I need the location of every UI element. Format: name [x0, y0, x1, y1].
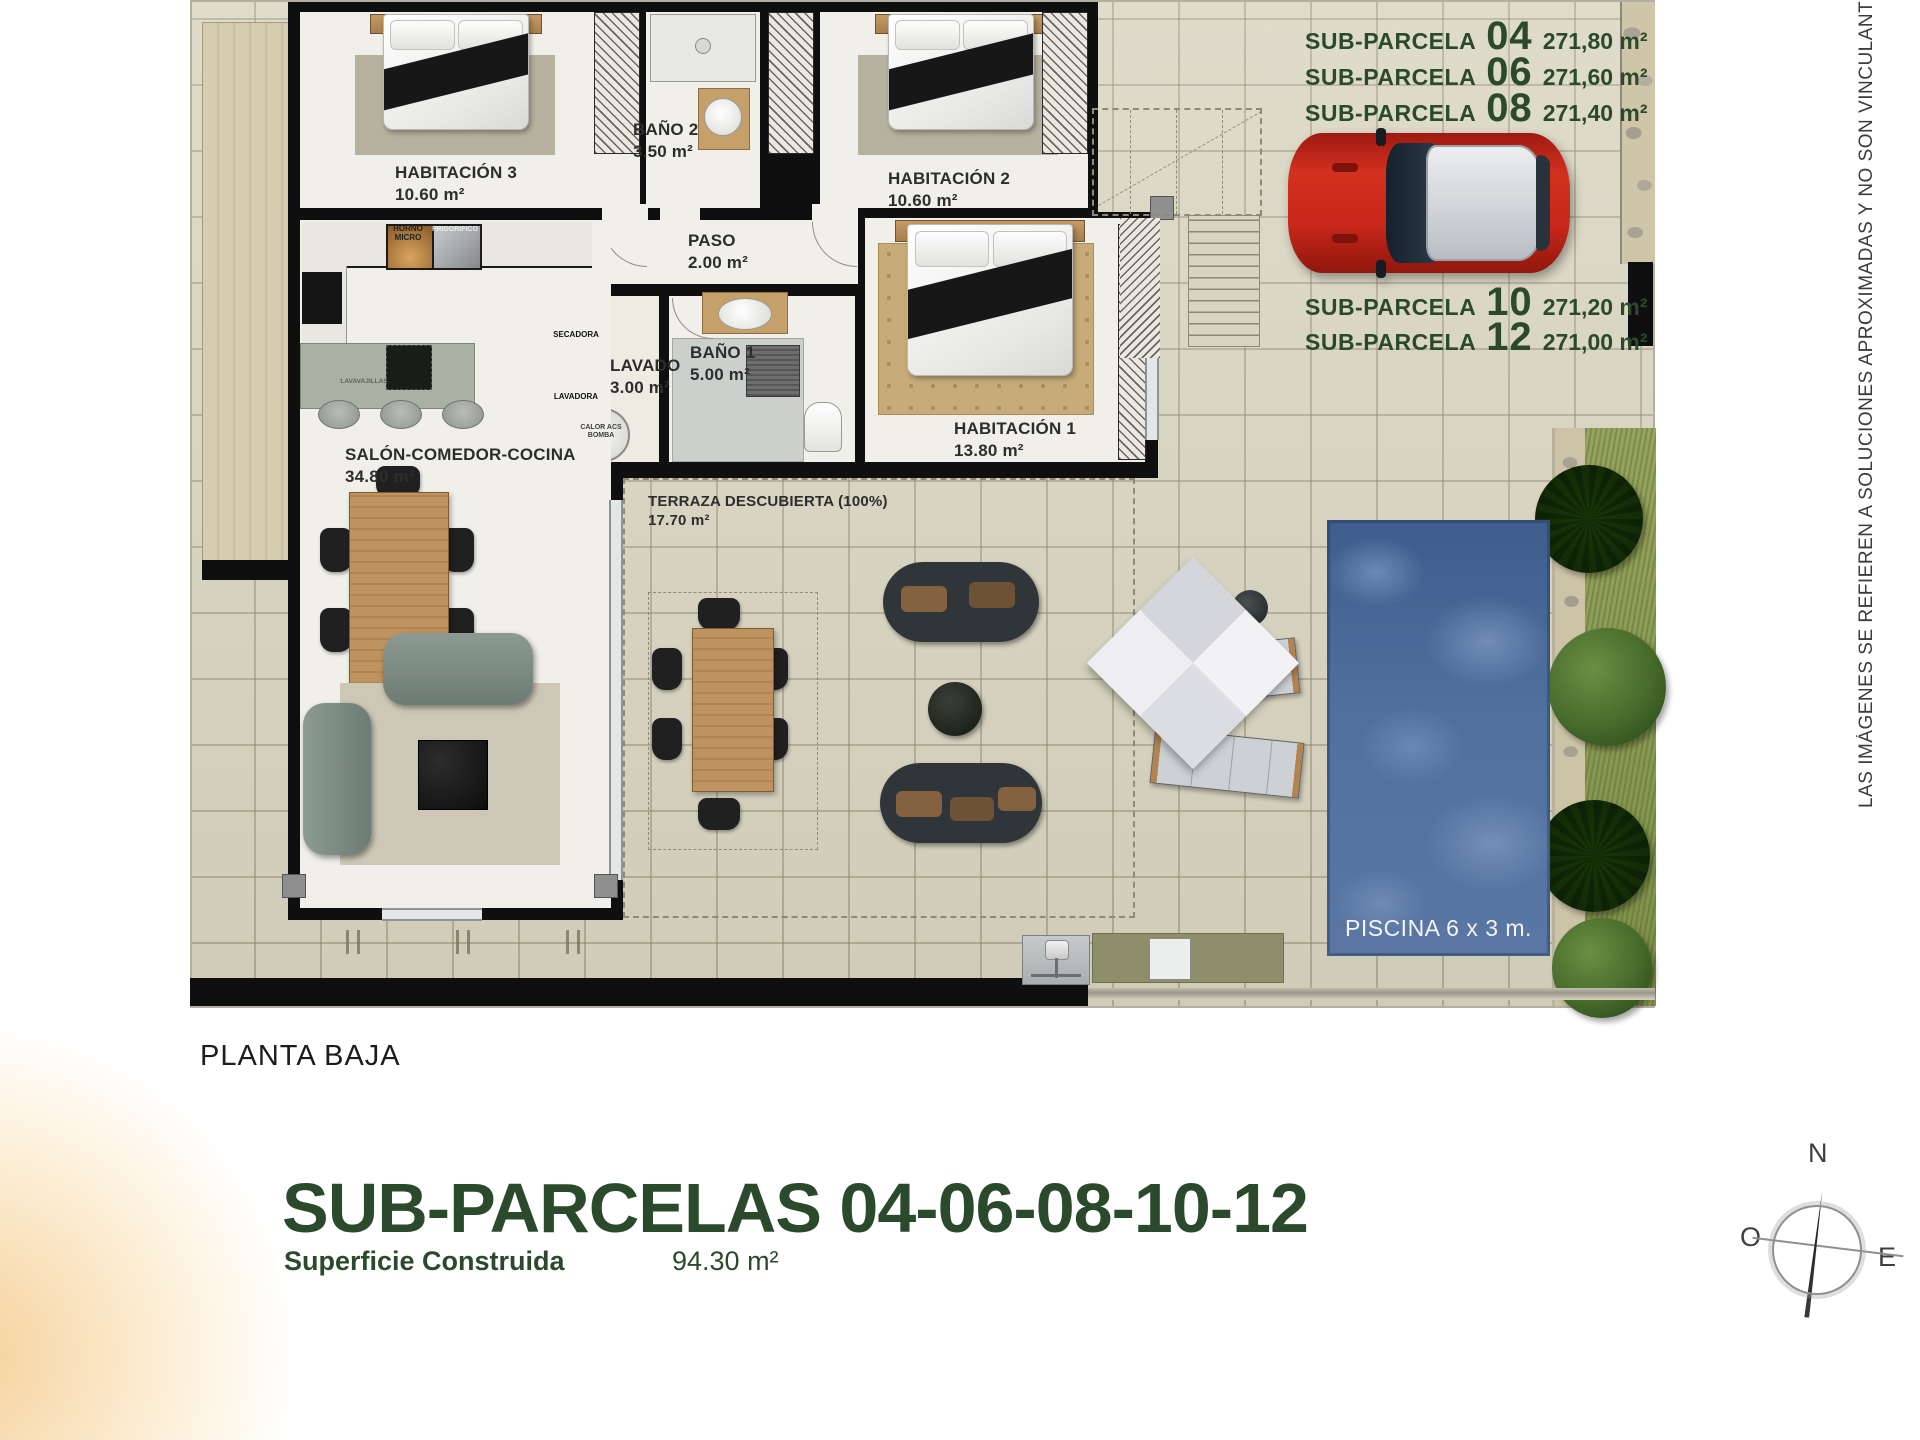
round-table — [928, 682, 982, 736]
washer-label: LAVADORA — [547, 392, 605, 401]
planter — [1092, 933, 1284, 983]
chair — [698, 798, 740, 830]
compass-rose: N O E — [1700, 1130, 1920, 1290]
palm-bush — [1535, 465, 1643, 573]
round-bush — [1552, 918, 1652, 1018]
car — [1288, 133, 1570, 273]
sink-round — [704, 98, 742, 136]
car-roof — [1426, 145, 1544, 261]
shower-drain — [695, 38, 711, 54]
label-terraza: TERRAZA DESCUBIERTA (100%)17.70 m² — [648, 492, 888, 530]
plot-boundary-wall — [190, 978, 1088, 1006]
fridge-label: FRIGORIFICO — [430, 226, 480, 234]
disclaimer-text: LAS IMÁGENES SE REFIEREN A SOLUCIONES AP… — [1856, 8, 1888, 808]
subparcela-row: SUB-PARCELA12271,00 m² — [1305, 315, 1648, 360]
page: { "subparcelas": { "top": [ {"label": "S… — [0, 0, 1920, 1280]
chair — [320, 608, 352, 652]
label-salon: SALÓN-COMEDOR-COCINA34.80 m² — [345, 444, 576, 488]
stool — [318, 400, 360, 429]
label-habitacion-3: HABITACIÓN 310.60 m² — [395, 162, 517, 206]
label-habitacion-2: HABITACIÓN 210.60 m² — [888, 168, 1010, 212]
page-corner-glow — [0, 1020, 300, 1440]
wall-segment — [202, 560, 288, 580]
bed — [383, 14, 529, 130]
dryer-label: SECADORA — [547, 330, 605, 339]
bed — [888, 14, 1034, 130]
oven-label: HORNO MICRO — [384, 224, 432, 242]
outdoor-sofa — [883, 562, 1039, 642]
pool-label: PISCINA 6 x 3 m. — [1345, 915, 1532, 942]
compass-north-label: N — [1808, 1138, 1828, 1169]
subparcela-row: SUB-PARCELA08271,40 m² — [1305, 86, 1648, 131]
pool: PISCINA 6 x 3 m. — [1327, 520, 1550, 956]
outdoor-shower — [1022, 935, 1090, 985]
round-bush — [1548, 628, 1666, 746]
wardrobe — [768, 12, 814, 154]
cooktop — [386, 345, 432, 390]
page-title: SUB-PARCELAS 04-06-08-10-12 — [282, 1168, 1308, 1248]
dishwasher-label: LAVAVAJILLAS — [338, 378, 390, 385]
compass-circle — [1772, 1205, 1862, 1295]
chair — [320, 528, 352, 572]
label-habitacion-1: HABITACIÓN 113.80 m² — [954, 418, 1076, 462]
coffee-table — [418, 740, 488, 810]
door-gap — [660, 204, 700, 222]
pergola-ticks — [302, 930, 602, 954]
side-deck — [202, 22, 290, 562]
label-bano-1: BAÑO 15.00 m² — [690, 342, 755, 386]
column — [594, 874, 618, 898]
carport-outline — [1092, 108, 1262, 216]
superficie-value: 94.30 m² — [672, 1246, 779, 1277]
chair — [652, 648, 682, 690]
sofa — [383, 633, 533, 705]
outdoor-sofa — [880, 763, 1042, 843]
stool — [380, 400, 422, 429]
sink-cooktop — [302, 272, 342, 324]
column — [282, 874, 306, 898]
label-paso: PASO2.00 m² — [688, 230, 748, 274]
outdoor-dining-table — [692, 628, 774, 792]
label-bano-2: BAÑO 23.50 m² — [633, 119, 698, 163]
compass-east-label: E — [1878, 1242, 1896, 1273]
door-gap — [812, 204, 858, 222]
stool — [442, 400, 484, 429]
chair — [698, 598, 740, 630]
sink-oval — [718, 298, 772, 330]
car-rear-window — [1536, 155, 1550, 251]
sliding-door — [382, 908, 482, 921]
window — [609, 500, 623, 880]
chair — [652, 718, 682, 760]
superficie-label: Superficie Construida — [284, 1246, 565, 1277]
toilet — [804, 402, 842, 452]
heat-pump-label: CALOR ACS BOMBA — [574, 424, 628, 440]
bed — [907, 224, 1073, 376]
plan-title: PLANTA BAJA — [200, 1040, 401, 1073]
wardrobe — [1042, 12, 1088, 154]
label-lavado: LAVADO3.00 m² — [610, 355, 680, 399]
exterior-stairs — [1188, 215, 1260, 347]
palm-bush — [1538, 800, 1650, 912]
sofa — [303, 703, 371, 855]
plot-edge-line — [1088, 988, 1655, 1000]
wardrobe-strip — [1120, 218, 1160, 358]
